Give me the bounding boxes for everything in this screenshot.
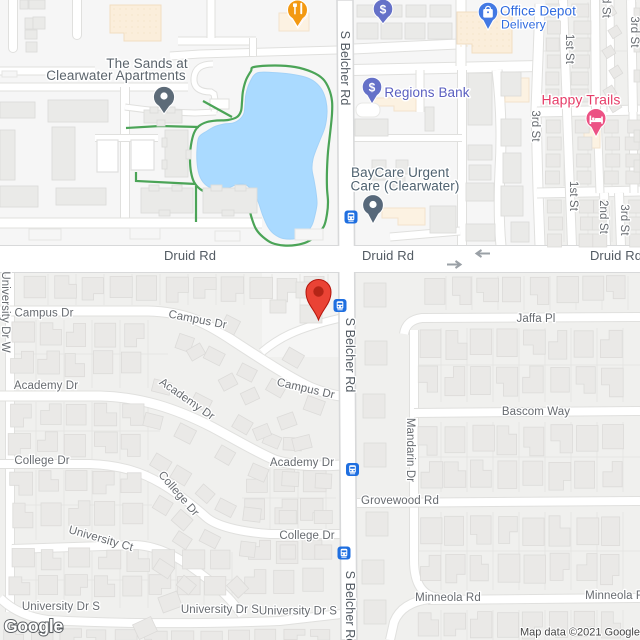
svg-text:Campus Dr: Campus Dr xyxy=(14,308,73,320)
svg-text:Academy Dr: Academy Dr xyxy=(14,380,78,392)
svg-text:Druid Rd: Druid Rd xyxy=(590,248,640,263)
svg-text:$: $ xyxy=(369,81,376,95)
svg-text:Mandarin Dr: Mandarin Dr xyxy=(404,418,416,482)
svg-text:Grovewood Rd: Grovewood Rd xyxy=(361,495,439,507)
svg-text:Map data ©2021 Google: Map data ©2021 Google xyxy=(520,627,640,639)
svg-text:2nd St: 2nd St xyxy=(600,0,612,19)
svg-text:S Belcher Rd: S Belcher Rd xyxy=(343,571,357,640)
svg-text:College Dr: College Dr xyxy=(279,530,334,542)
svg-text:Care (Clearwater): Care (Clearwater) xyxy=(351,179,460,194)
svg-text:Minneola Rd: Minneola Rd xyxy=(585,590,640,602)
svg-text:Google: Google xyxy=(4,616,64,636)
svg-text:University Dr S: University Dr S xyxy=(181,604,259,616)
svg-text:Minneola Rd: Minneola Rd xyxy=(415,592,481,604)
svg-text:Druid Rd: Druid Rd xyxy=(362,248,414,263)
svg-text:Happy Trails: Happy Trails xyxy=(541,92,620,108)
svg-text:2nd St: 2nd St xyxy=(597,200,609,235)
svg-text:Delivery: Delivery xyxy=(501,18,547,32)
svg-text:Druid Rd: Druid Rd xyxy=(164,248,216,263)
svg-text:3rd St: 3rd St xyxy=(628,16,640,48)
svg-text:S Belcher Rd: S Belcher Rd xyxy=(343,318,357,393)
svg-text:1st St: 1st St xyxy=(567,181,579,212)
svg-text:University Dr W: University Dr W xyxy=(0,271,11,352)
svg-text:3rd St: 3rd St xyxy=(618,204,630,236)
svg-text:University Dr S: University Dr S xyxy=(259,606,337,618)
svg-text:1st St: 1st St xyxy=(563,34,575,65)
svg-text:S Belcher Rd: S Belcher Rd xyxy=(338,31,352,106)
svg-text:Jaffa Pl: Jaffa Pl xyxy=(517,313,556,325)
svg-text:Bascom Way: Bascom Way xyxy=(502,406,570,418)
svg-text:$: $ xyxy=(380,3,387,17)
svg-text:3rd St: 3rd St xyxy=(529,110,541,142)
svg-text:College Dr: College Dr xyxy=(14,455,69,467)
svg-text:Academy Dr: Academy Dr xyxy=(270,457,334,469)
svg-text:Office Depot: Office Depot xyxy=(500,4,576,19)
svg-text:University Dr S: University Dr S xyxy=(22,601,100,613)
svg-text:Regions Bank: Regions Bank xyxy=(384,85,469,100)
svg-text:Clearwater Apartments: Clearwater Apartments xyxy=(46,68,186,83)
